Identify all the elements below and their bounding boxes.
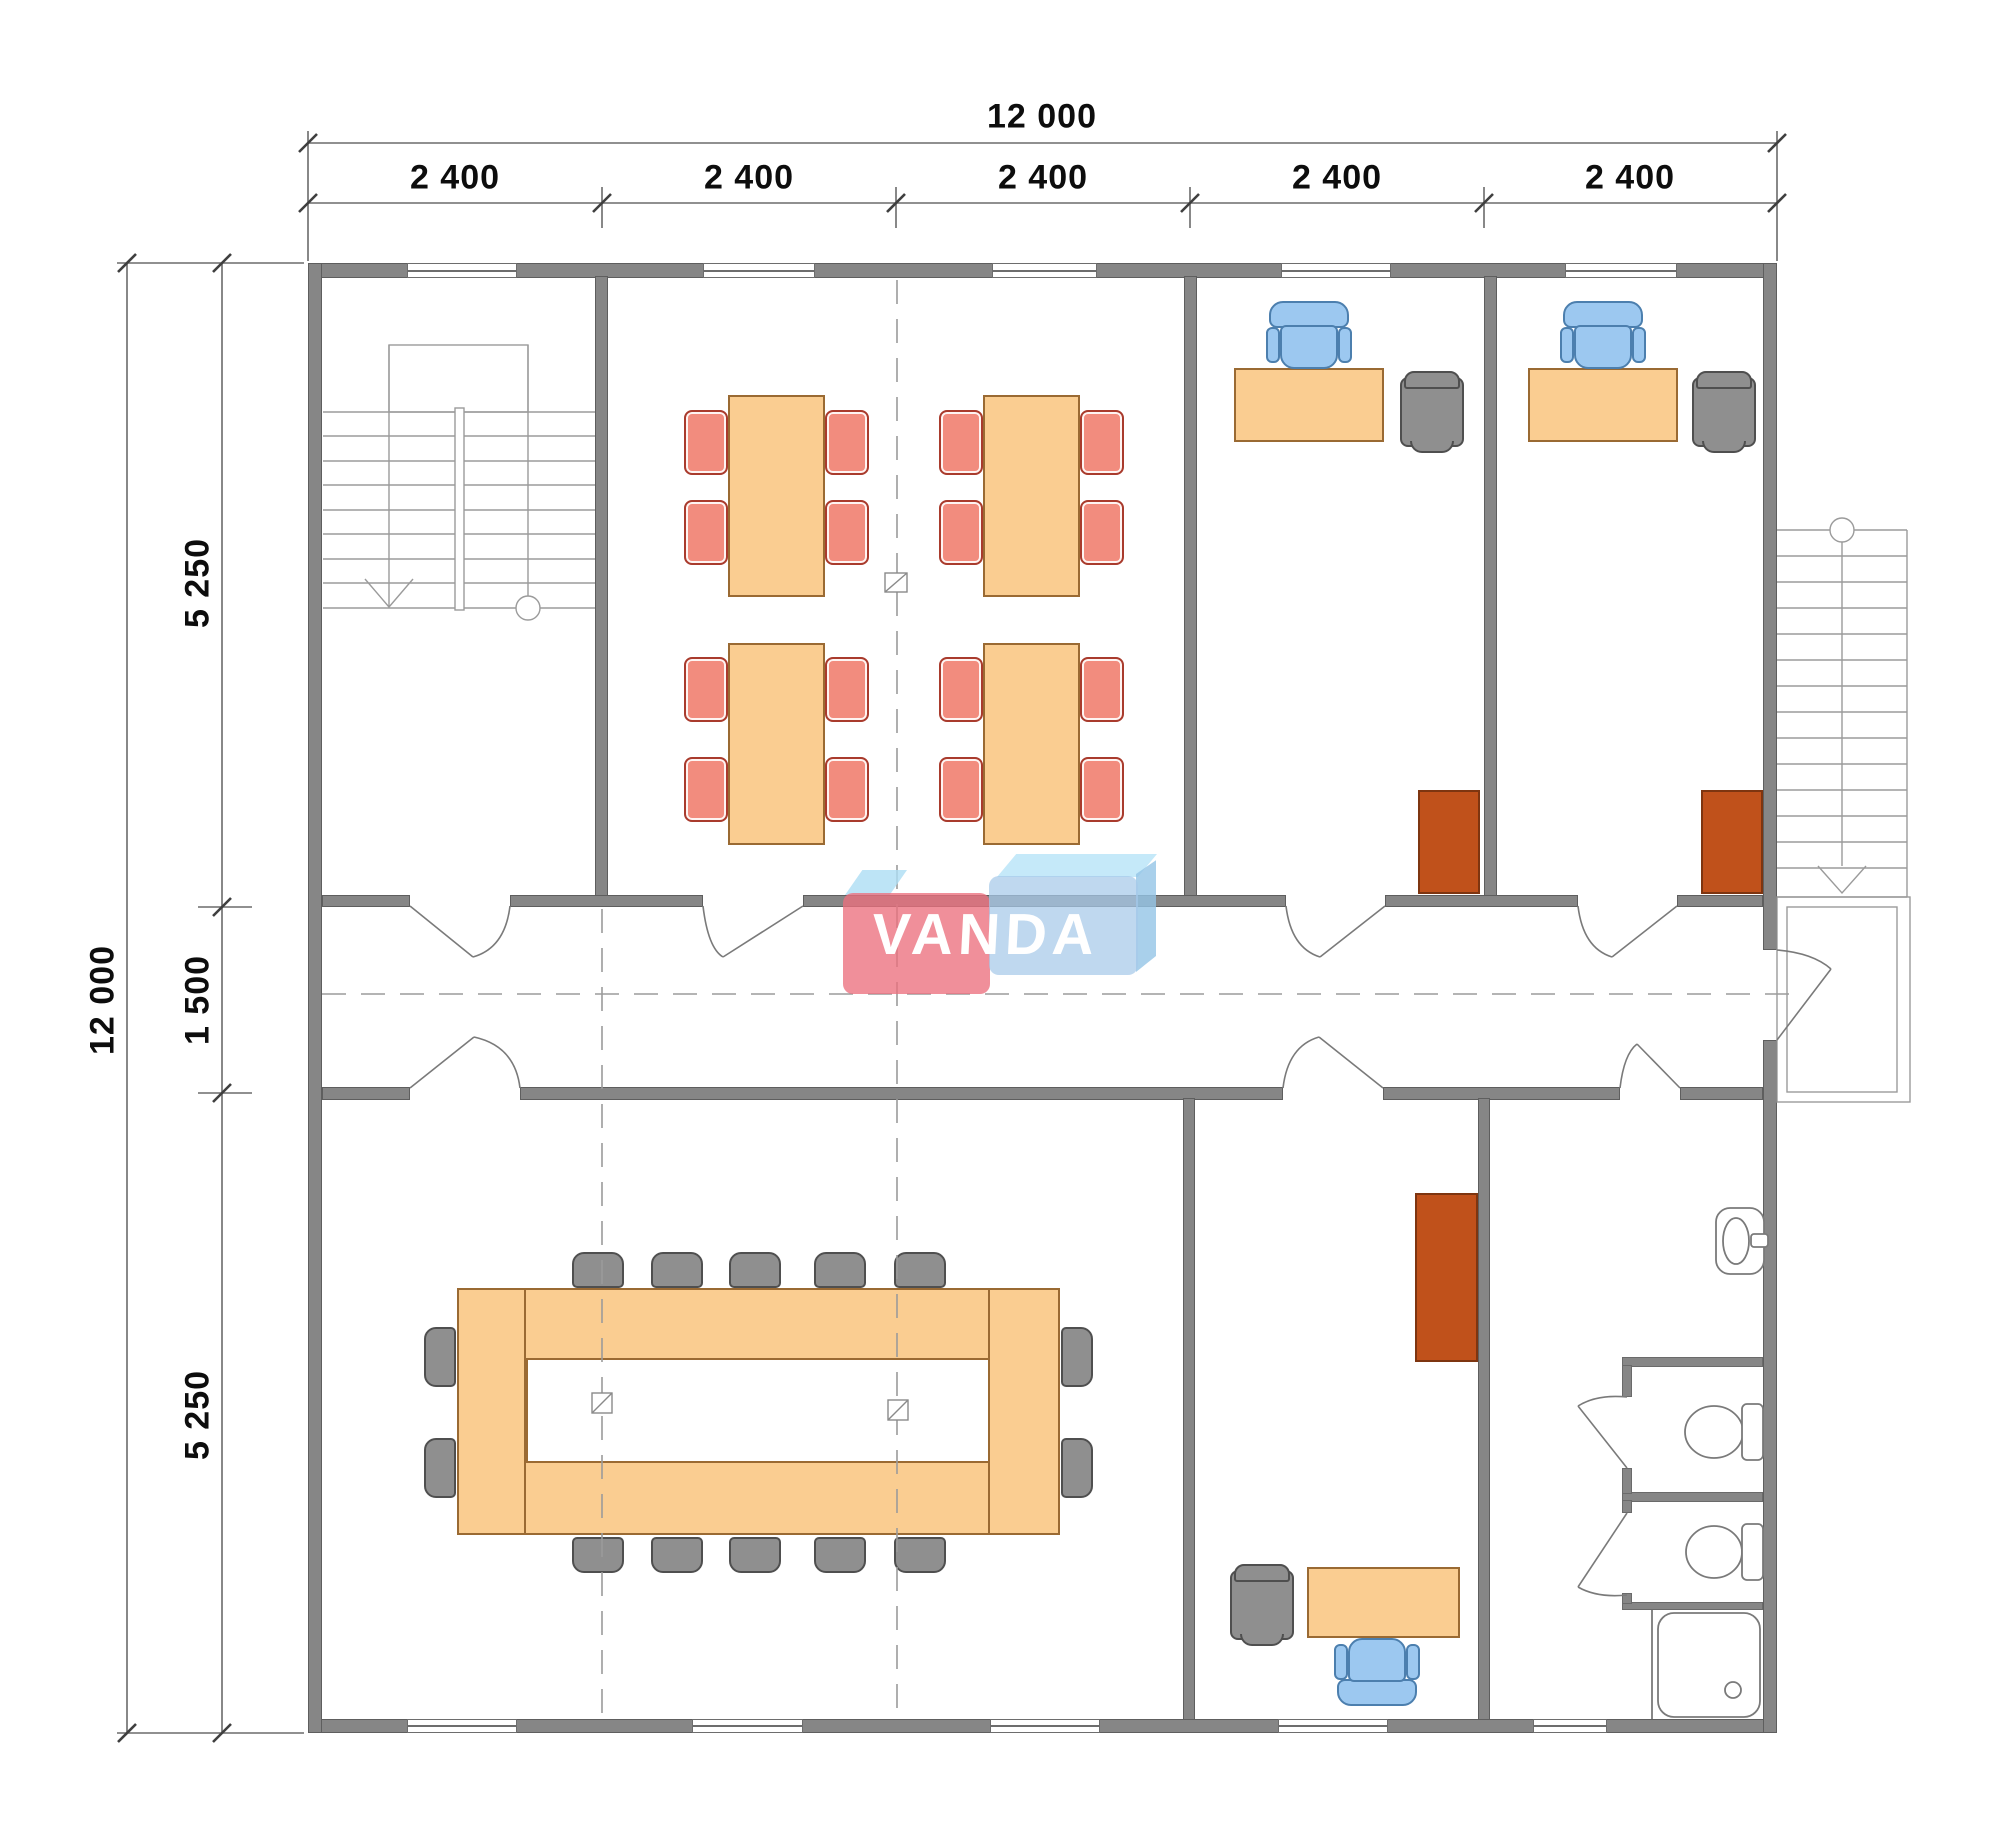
grid-dashed-lines — [322, 280, 1800, 1717]
column-icon — [885, 573, 907, 592]
logo-blue-bevel — [997, 854, 1157, 877]
door-office2 — [1578, 906, 1677, 957]
door-stair-room — [410, 906, 510, 957]
stair-newel-circle — [1830, 518, 1854, 542]
door-wc-stall2 — [1578, 1513, 1627, 1596]
door-dining-room — [703, 906, 803, 957]
dim-label-bay: 2 400 — [1585, 159, 1675, 198]
door-conference — [410, 1037, 520, 1088]
door-office3 — [1283, 1037, 1383, 1088]
entrance-porch — [1777, 897, 1910, 1102]
toilet-icon — [1686, 1524, 1763, 1580]
sink-icon — [1716, 1208, 1768, 1274]
floor-plan-canvas: 12 000 2 400 2 400 2 400 2 400 2 400 12 … — [0, 0, 2000, 1848]
door-wc-stall1 — [1578, 1396, 1627, 1468]
stair-newel-circle — [516, 596, 540, 620]
dim-label-segment: 5 250 — [179, 1370, 218, 1460]
toilet-icon — [1685, 1404, 1763, 1460]
dim-label-total-width: 12 000 — [987, 98, 1097, 137]
column-symbols — [592, 573, 908, 1420]
sanitary-fixtures — [1652, 1208, 1768, 1719]
column-icon — [592, 1393, 612, 1413]
dim-label-segment: 5 250 — [179, 538, 218, 628]
door-office1 — [1286, 906, 1385, 957]
logo-blue-side-bevel — [1136, 858, 1156, 972]
door-entrance — [1777, 950, 1831, 1040]
dim-label-bay: 2 400 — [410, 159, 500, 198]
stair-down-arrow — [1818, 866, 1866, 893]
dim-label-bay: 2 400 — [998, 159, 1088, 198]
column-icon — [888, 1400, 908, 1420]
shower-icon — [1652, 1610, 1760, 1719]
logo-text: VANDA — [870, 901, 1100, 968]
dim-label-segment: 1 500 — [179, 955, 218, 1045]
dim-label-total-height: 12 000 — [84, 945, 123, 1055]
door-washroom — [1620, 1044, 1680, 1088]
dim-label-bay: 2 400 — [1292, 159, 1382, 198]
door-swings — [410, 906, 1831, 1596]
dim-label-bay: 2 400 — [704, 159, 794, 198]
interior-staircase — [323, 345, 595, 620]
